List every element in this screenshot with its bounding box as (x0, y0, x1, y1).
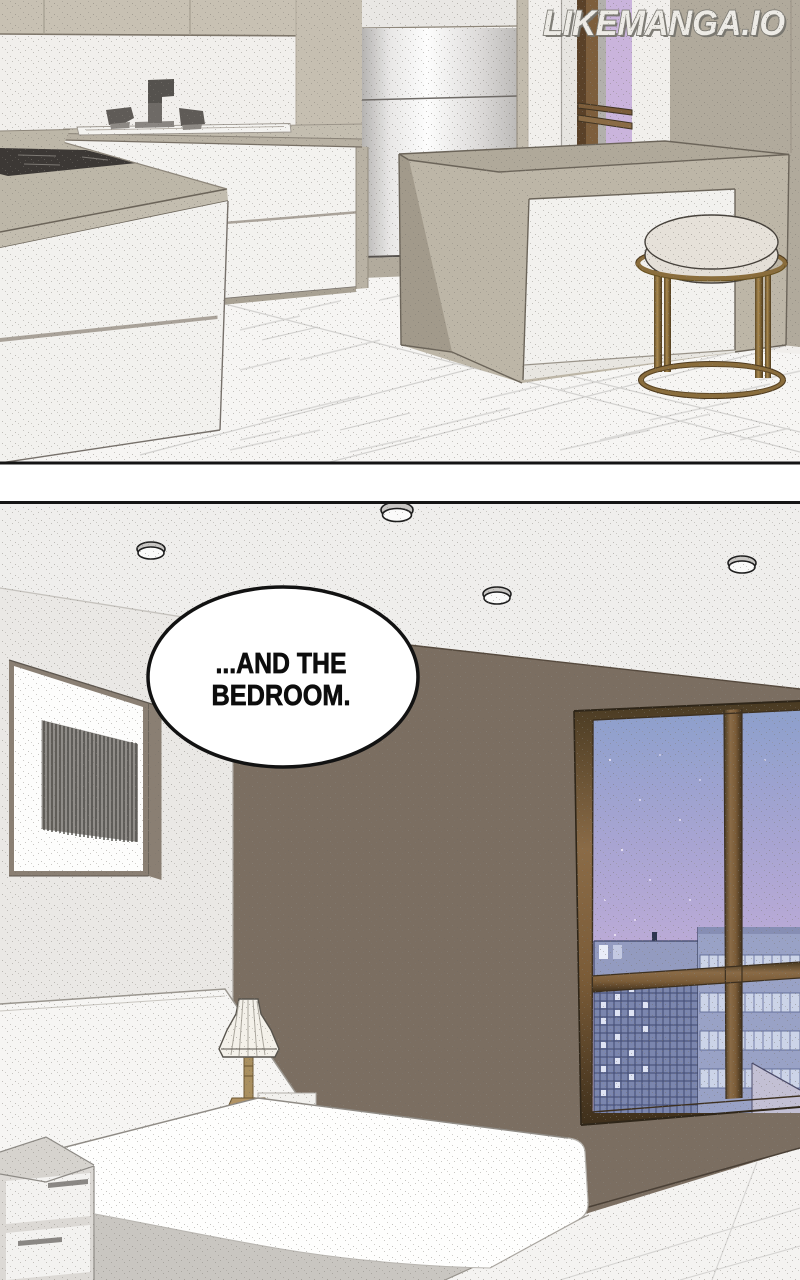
svg-text:BEDROOM.: BEDROOM. (212, 680, 351, 712)
svg-text:...AND THE: ...AND THE (216, 648, 347, 680)
